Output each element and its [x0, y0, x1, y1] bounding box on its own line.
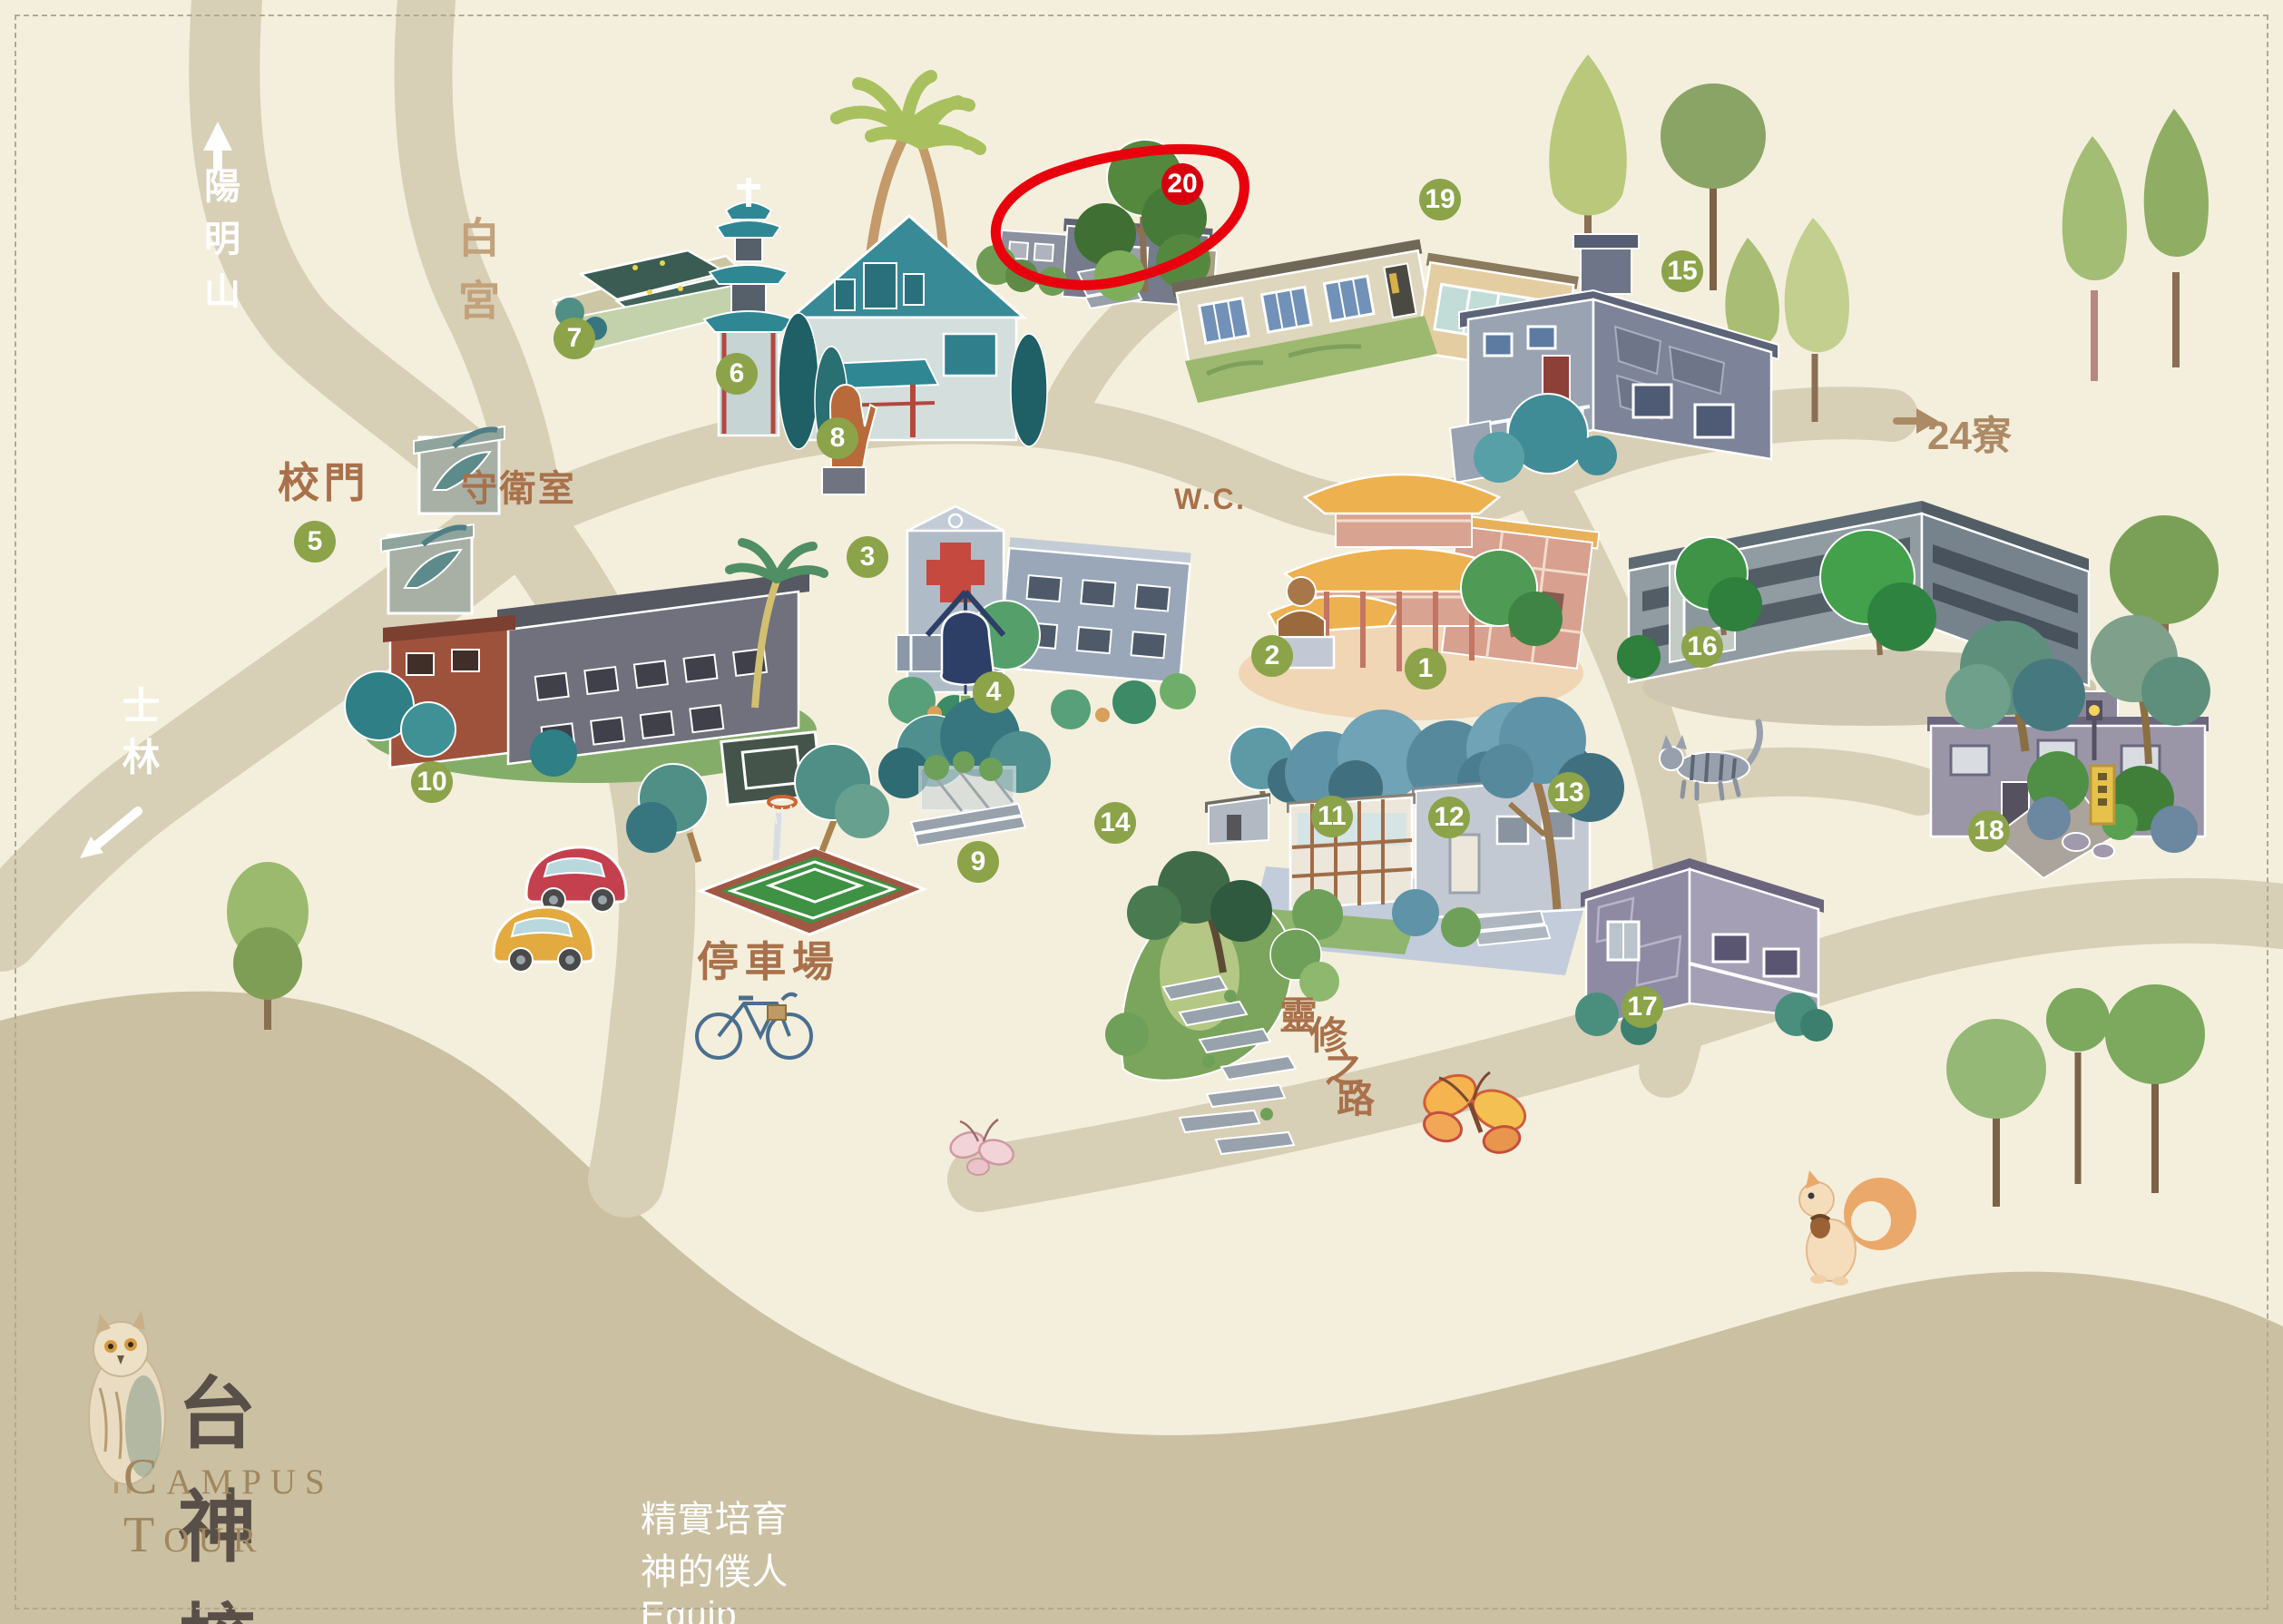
spiritual-path-char-3: 路: [1337, 1069, 1375, 1124]
map-title-en: Campus Tour: [123, 1448, 334, 1564]
building-3: [888, 506, 1196, 735]
bicycle: [697, 994, 811, 1058]
place-label-parking: 停車場: [697, 929, 839, 989]
direction-label-yangmingshan: 陽明山: [192, 167, 245, 325]
bottom-band: [0, 992, 2283, 1624]
place-label-white-house: 白宮: [446, 216, 506, 341]
place-label-spiritual-path: 靈修之路: [1279, 985, 1388, 1130]
car-yellow: [494, 907, 593, 972]
map-illustration: [0, 0, 2283, 1624]
campus-map: 陽明山 士林 24寮 白宮 校門 守衛室 W.C. 停車場 靈修之路 12345…: [0, 0, 2283, 1624]
car-red: [526, 847, 626, 912]
map-tagline: 精實培育神的僕人 Equip and Nurture the Servants …: [641, 1490, 789, 1624]
squirrel: [1799, 1170, 1916, 1286]
direction-label-shilin: 士林: [111, 686, 166, 788]
direction-label-dorm24: 24寮: [1927, 403, 2012, 461]
place-label-wc: W.C.: [1174, 483, 1247, 516]
place-label-guard-room: 守衛室: [461, 459, 576, 512]
place-label-school-gate: 校門: [278, 450, 369, 510]
trees-right-edge: [2063, 109, 2209, 381]
trees-bottom-right: [1946, 984, 2205, 1207]
